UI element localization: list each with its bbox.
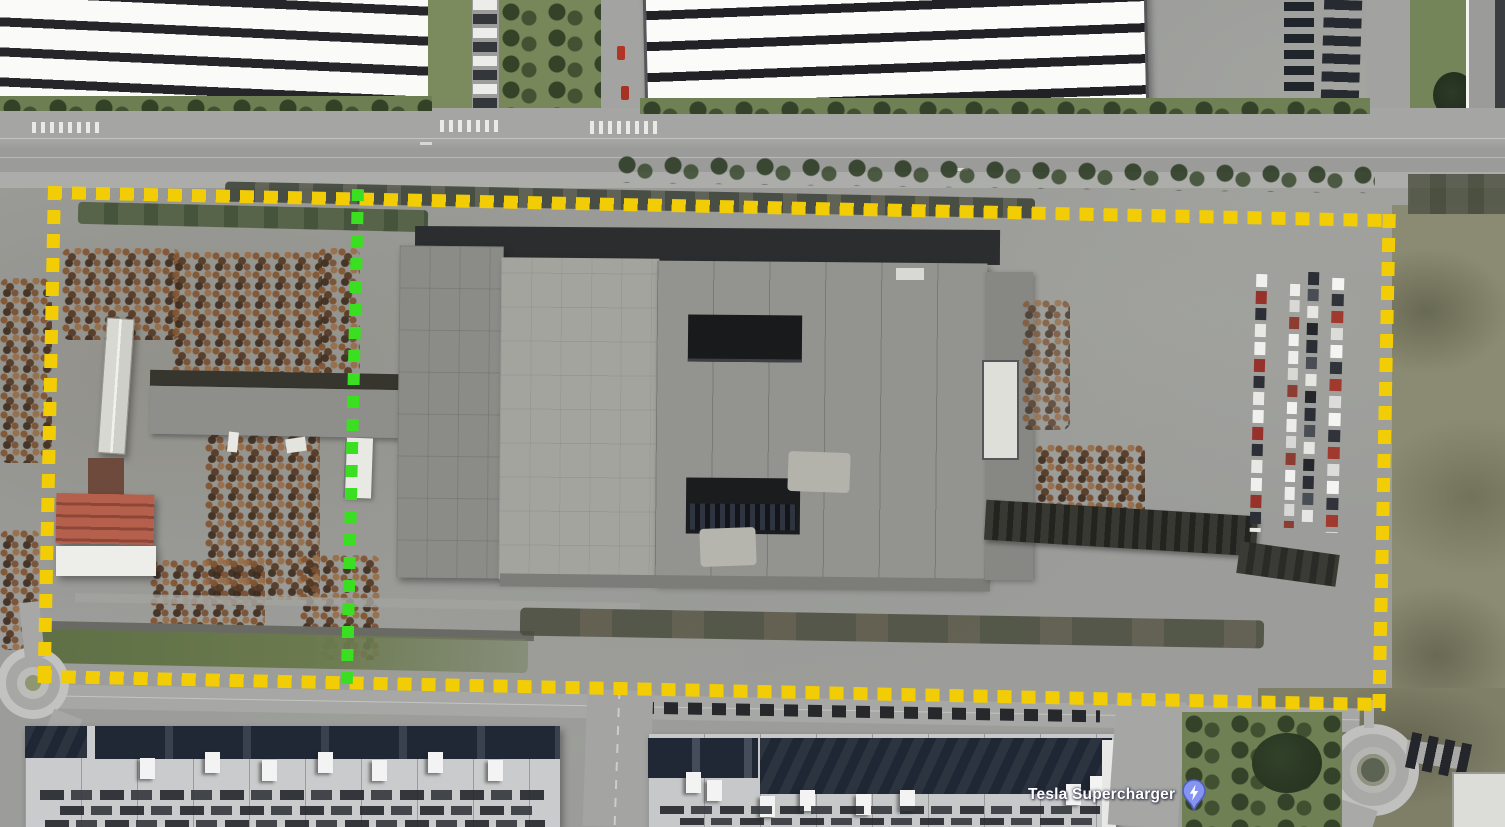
rooftop-unit xyxy=(318,752,333,773)
bush-strip-east xyxy=(1408,174,1505,214)
site-boundary-overlay xyxy=(38,186,1396,711)
rooftop-unit xyxy=(262,760,277,781)
supercharger-poi[interactable]: Tesla Supercharger xyxy=(1028,779,1206,811)
vent-row-5 xyxy=(680,818,1100,825)
scrub-east xyxy=(1392,205,1505,735)
lane-line-1 xyxy=(0,138,1505,139)
tree-cluster-southeast xyxy=(1252,733,1322,793)
rooftop-unit xyxy=(686,772,701,793)
satellite-map-canvas[interactable]: Tesla Supercharger xyxy=(0,0,1505,827)
parked-cars-column-top xyxy=(473,0,497,112)
south-factory-west-navy-corner xyxy=(25,726,87,758)
road-between-south-factories xyxy=(583,689,654,827)
south-factory-east-navy-blocks xyxy=(648,738,758,778)
crosswalk-mid-2 xyxy=(590,121,660,134)
car-red-1 xyxy=(617,46,625,60)
crosswalk-west xyxy=(32,122,100,133)
gap-road-line xyxy=(614,690,621,827)
rooftop-unit xyxy=(140,758,155,779)
verge-green-left xyxy=(0,96,432,111)
building-southeast-corner xyxy=(1452,772,1505,827)
grass-block-top xyxy=(499,0,601,114)
roundabout-east-green xyxy=(1357,754,1389,786)
south-factory-west xyxy=(25,726,560,827)
car-red-2 xyxy=(621,86,629,100)
grass-strip-top xyxy=(428,0,472,116)
rooftop-unit xyxy=(428,752,443,773)
rooftop-unit xyxy=(205,752,220,773)
supercharger-label[interactable]: Tesla Supercharger xyxy=(1028,786,1175,804)
rooftop-unit xyxy=(707,780,722,801)
lane-arrow-1 xyxy=(420,142,432,145)
vent-row-1 xyxy=(40,790,545,800)
verge-green-right xyxy=(640,98,1370,114)
rooftop-unit xyxy=(372,760,387,781)
vent-row-2 xyxy=(60,806,540,815)
vent-row-3 xyxy=(45,820,545,827)
ev-charger-pin-icon[interactable] xyxy=(1182,779,1206,811)
crosswalk-mid-1 xyxy=(440,120,498,132)
rooftop-unit xyxy=(488,760,503,781)
